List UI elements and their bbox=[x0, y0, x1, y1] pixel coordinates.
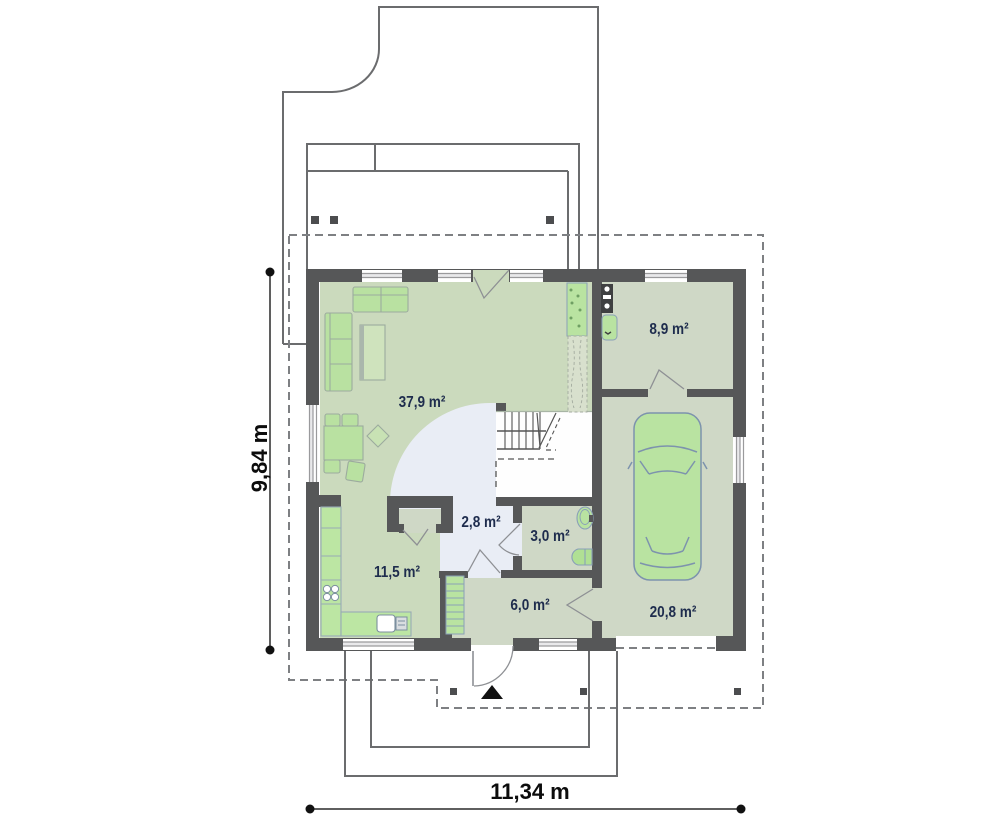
svg-text:11,34 m: 11,34 m bbox=[490, 779, 570, 804]
svg-text:9,84 m: 9,84 m bbox=[247, 424, 272, 493]
svg-text:8,9 m²: 8,9 m² bbox=[649, 321, 688, 338]
svg-text:3,0 m²: 3,0 m² bbox=[530, 528, 569, 545]
svg-text:37,9 m²: 37,9 m² bbox=[399, 394, 446, 411]
svg-text:11,5 m²: 11,5 m² bbox=[374, 564, 420, 581]
svg-text:2,8 m²: 2,8 m² bbox=[461, 514, 500, 531]
svg-text:20,8 m²: 20,8 m² bbox=[650, 604, 697, 621]
svg-text:6,0 m²: 6,0 m² bbox=[510, 597, 549, 614]
